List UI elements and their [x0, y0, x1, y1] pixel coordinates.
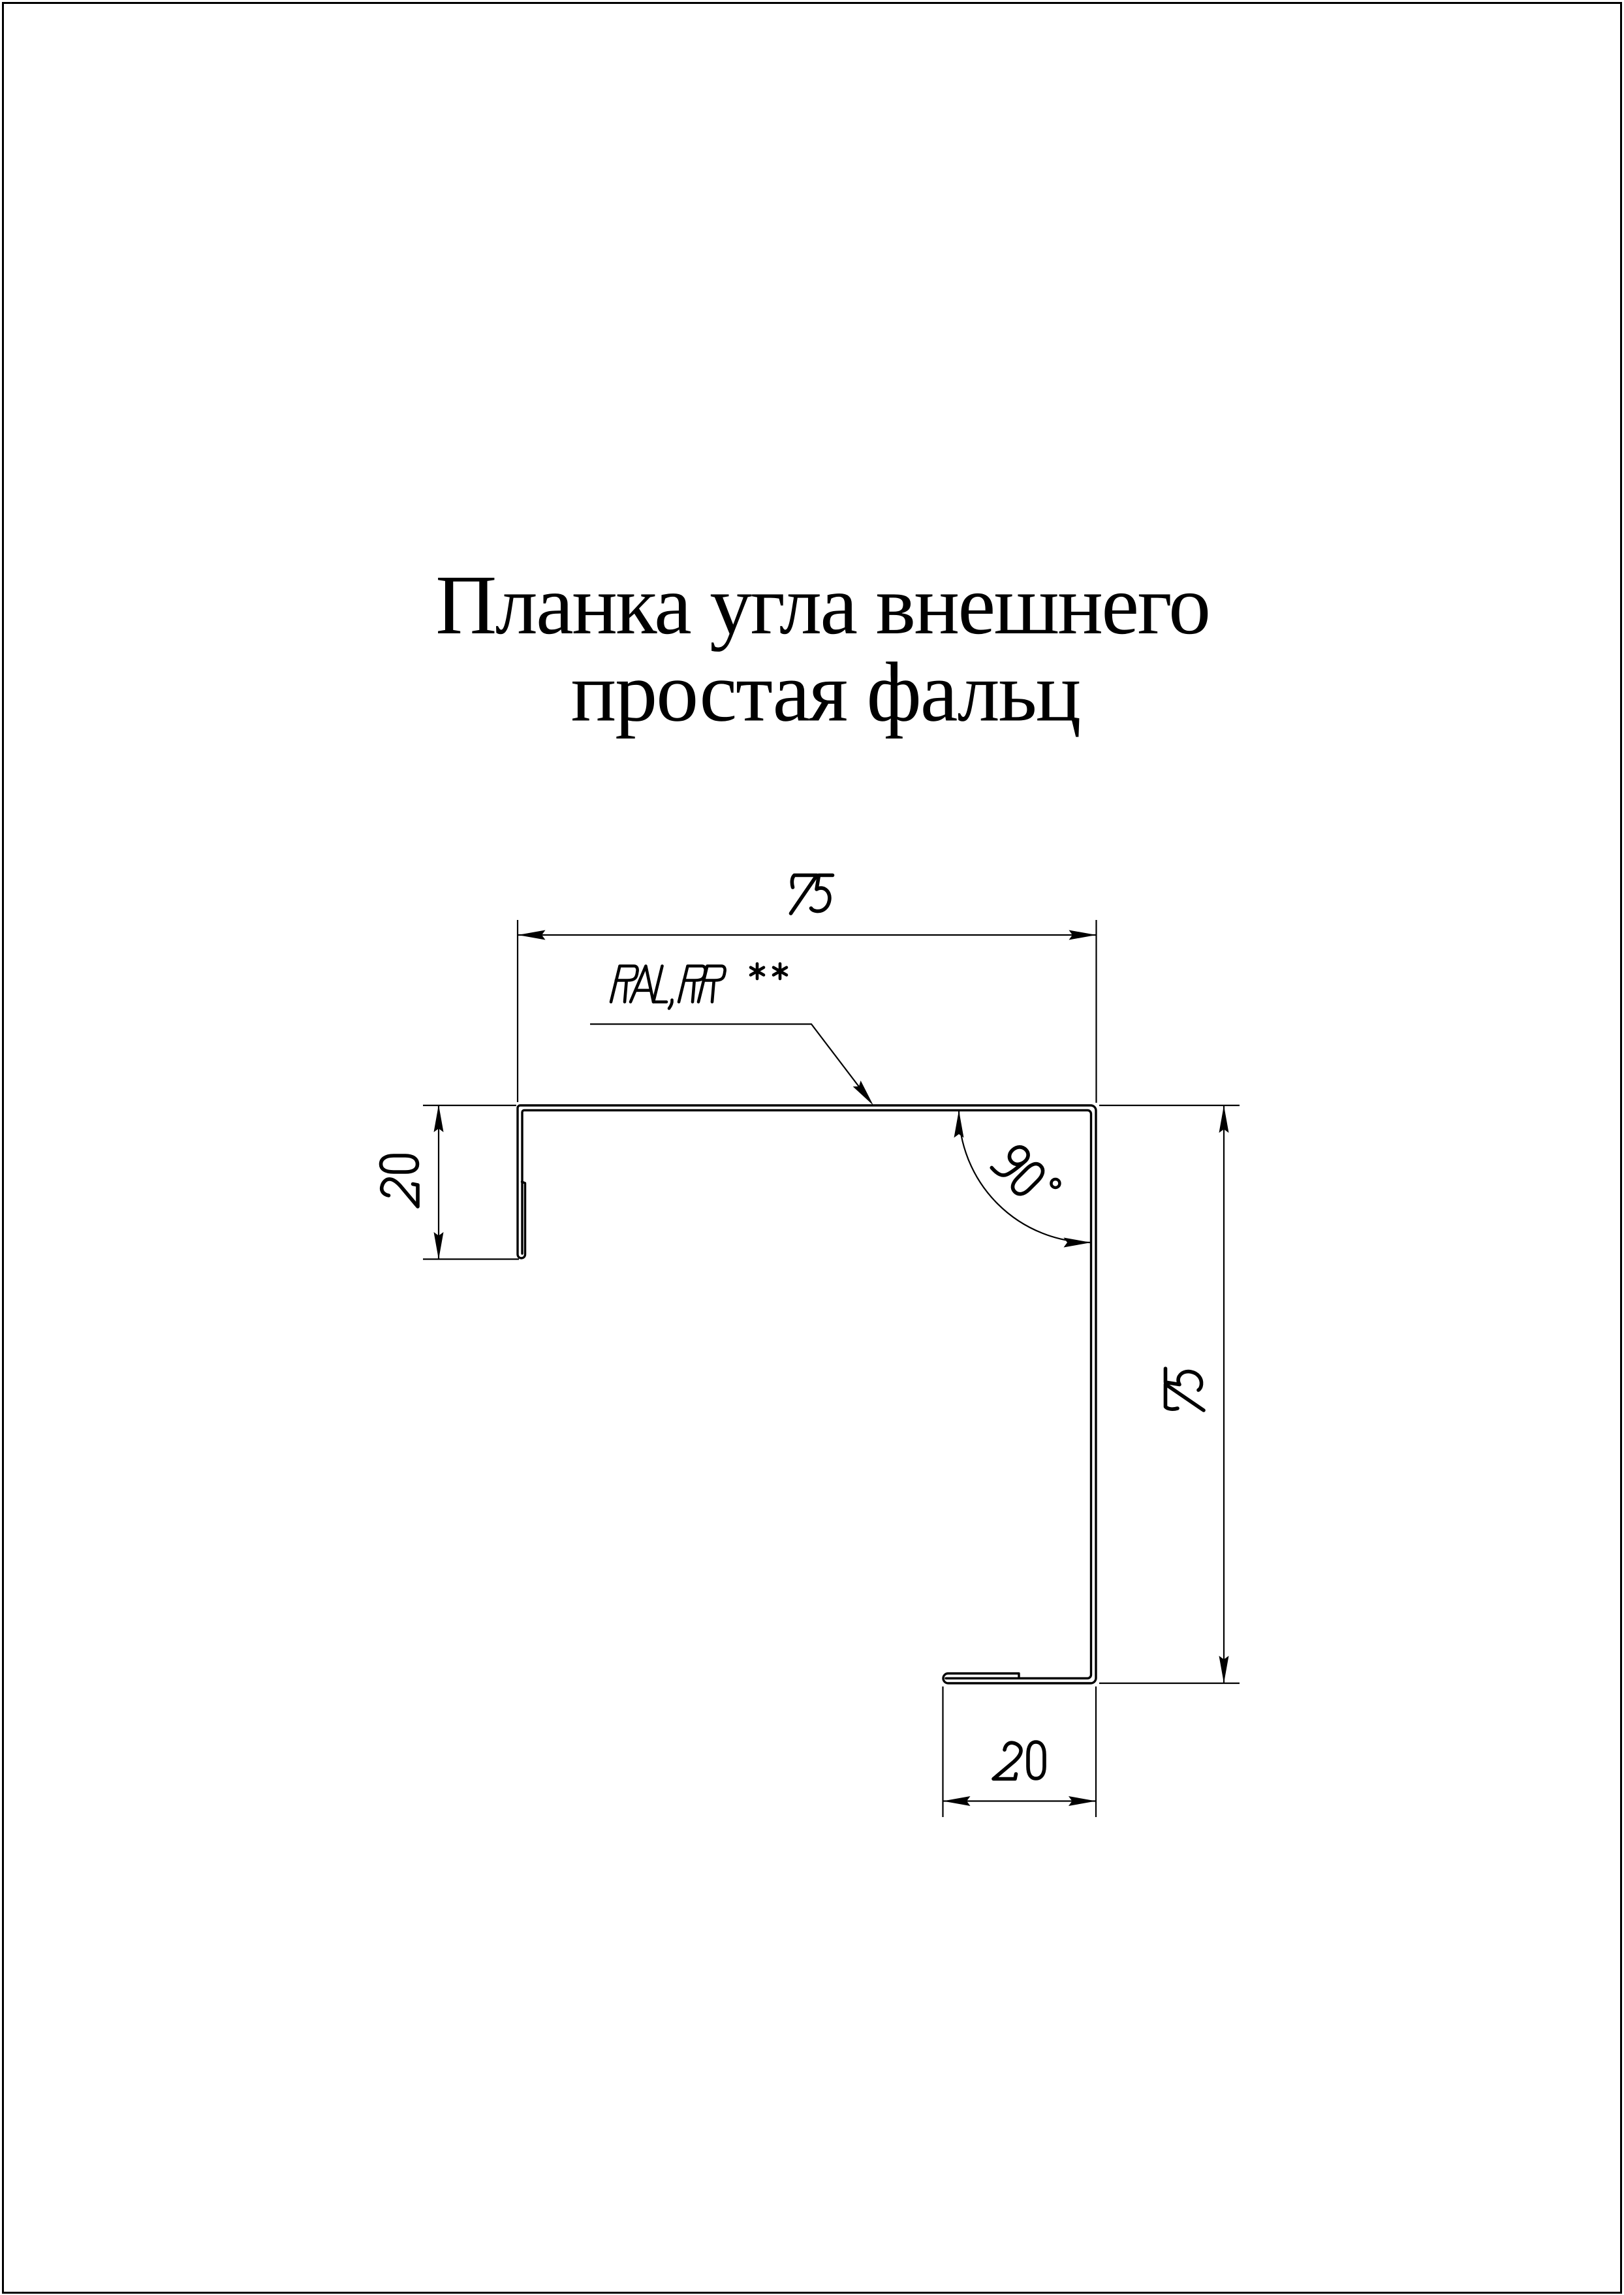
svg-text:простая фальц: простая фальц [571, 646, 1080, 740]
svg-text:Планка угла внешнего: Планка угла внешнего [435, 558, 1209, 652]
